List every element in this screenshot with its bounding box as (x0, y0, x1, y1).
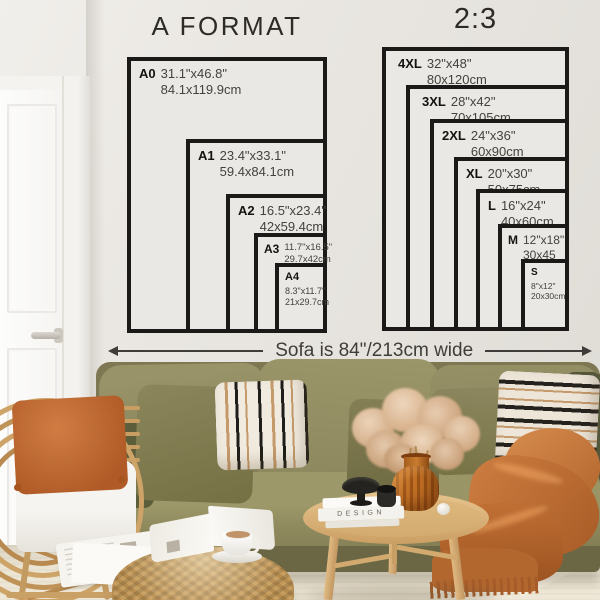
pillow-tassel (14, 484, 21, 491)
decor-ball (437, 503, 450, 515)
arrow-left-icon (108, 346, 118, 356)
size-cm: 84.1x119.9cm (161, 82, 242, 98)
pillow-striped-left (214, 379, 309, 470)
pedestal-bowl (342, 477, 380, 494)
size-name: A2 (238, 203, 255, 236)
size-inches: 16"x24" (501, 198, 554, 214)
a-format-chart-title: A FORMAT (127, 11, 327, 42)
size-inches: 32"x48" (427, 56, 487, 72)
pillow-tassel (118, 476, 125, 483)
size-rect-s: S 8"x12" 20x30cm (521, 259, 569, 331)
size-rect-a4: A4 8.3"x11.7" 21x29.7cm (275, 263, 327, 333)
dried-flowers (430, 438, 464, 470)
arrow-line-right (485, 350, 582, 352)
size-inches: 12"x18" (523, 233, 564, 248)
black-cup-rim (377, 485, 396, 493)
coffee-surface (225, 530, 251, 539)
size-cm: 20x30cm (531, 291, 564, 302)
pedestal-bowl-foot (350, 500, 372, 506)
arrow-right-icon (582, 346, 592, 356)
size-inches: 23.4"x33.1" (220, 148, 294, 164)
door-handle (31, 332, 61, 339)
size-inches: 11.7"x16.5" (284, 242, 332, 254)
size-name: 2XL (442, 128, 466, 161)
size-name: A0 (139, 66, 156, 99)
size-cm: 59.4x84.1cm (220, 164, 294, 180)
size-name: M (508, 233, 518, 263)
door-panel-top (7, 104, 57, 313)
size-name: A4 (285, 271, 322, 285)
size-name: L (488, 198, 496, 231)
size-name: 4XL (398, 56, 422, 89)
size-cm: 21x29.7cm (285, 297, 322, 308)
size-name: A1 (198, 148, 215, 181)
ratio-chart-title: 2:3 (382, 3, 569, 36)
book-spine-label: DESIGN (337, 509, 385, 518)
size-inches: 28"x42" (451, 94, 511, 110)
book-page-left (149, 513, 214, 563)
size-inches: 31.1"x46.8" (161, 66, 242, 82)
book-photo (166, 540, 180, 553)
size-inches: 20"x30" (488, 166, 541, 182)
size-inches: 24"x36" (471, 128, 524, 144)
table-post (392, 542, 397, 564)
size-inches: 8"x12" (531, 281, 564, 292)
size-inches: 8.3"x11.7" (285, 286, 322, 297)
arrow-line-left (118, 350, 263, 352)
size-inches: 16.5"x23.4" (260, 203, 326, 219)
living-room-size-guide-photo: A FORMAT A0 31.1"x46.8" 84.1x119.9cm A1 … (0, 0, 600, 600)
pillow-rust-chair (12, 395, 129, 495)
size-name: S (531, 267, 564, 280)
